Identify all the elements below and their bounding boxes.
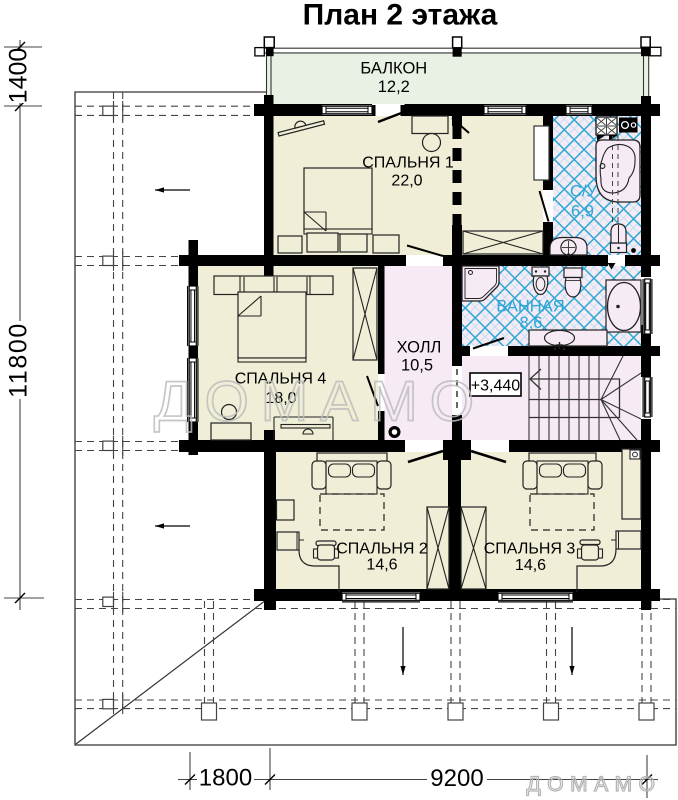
svg-text:ХОЛЛ: ХОЛЛ	[397, 339, 442, 357]
svg-text:СПАЛЬНЯ 1: СПАЛЬНЯ 1	[362, 155, 454, 172]
svg-text:СПАЛЬНЯ 2: СПАЛЬНЯ 2	[336, 541, 428, 558]
svg-text:ДОМАМО: ДОМАМО	[527, 773, 662, 796]
svg-text:ДОМАМО: ДОМАМО	[154, 370, 486, 434]
svg-text:План 2 этажа: План 2 этажа	[303, 0, 498, 32]
svg-text:1400: 1400	[5, 48, 33, 104]
svg-text:9200: 9200	[430, 765, 483, 792]
svg-text:14,6: 14,6	[366, 557, 397, 574]
svg-text:6,9: 6,9	[571, 203, 594, 221]
svg-text:1800: 1800	[199, 765, 252, 792]
svg-text:СПАЛЬНЯ 3: СПАЛЬНЯ 3	[484, 541, 576, 558]
svg-text:ВАННАЯ: ВАННАЯ	[496, 298, 564, 316]
svg-text:БАЛКОН: БАЛКОН	[360, 60, 427, 78]
svg-text:8,6: 8,6	[520, 314, 543, 332]
svg-text:22,0: 22,0	[391, 173, 422, 190]
svg-text:С/У: С/У	[570, 183, 598, 201]
svg-text:11800: 11800	[5, 322, 33, 398]
svg-text:12,2: 12,2	[378, 78, 410, 96]
svg-text:14,6: 14,6	[515, 557, 546, 574]
